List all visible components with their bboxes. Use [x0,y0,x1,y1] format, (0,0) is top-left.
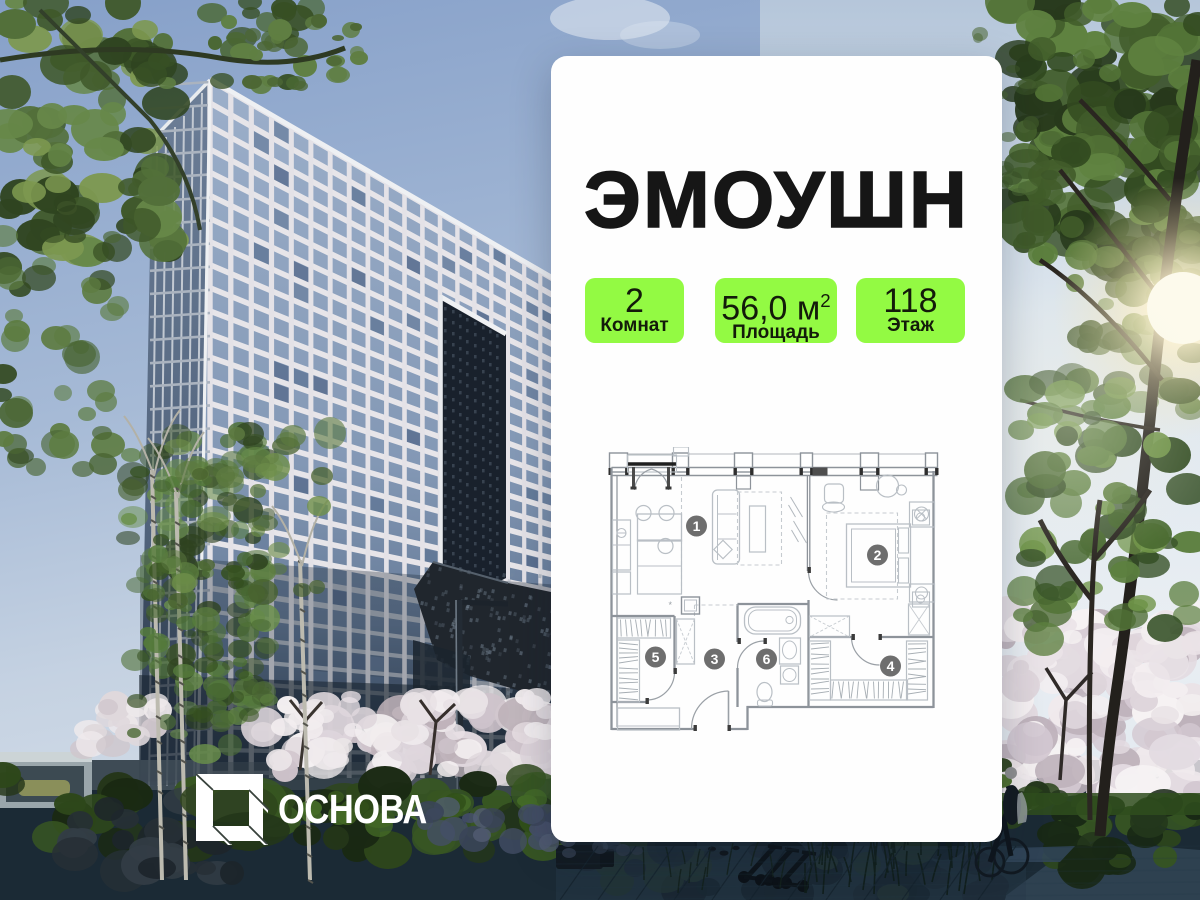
svg-text:4: 4 [887,658,895,674]
svg-text:5: 5 [652,649,660,665]
svg-text:*: * [669,600,673,610]
svg-text:1: 1 [693,518,701,534]
svg-text:2: 2 [874,547,882,563]
svg-text:6: 6 [763,651,771,667]
svg-text:3: 3 [711,651,719,667]
